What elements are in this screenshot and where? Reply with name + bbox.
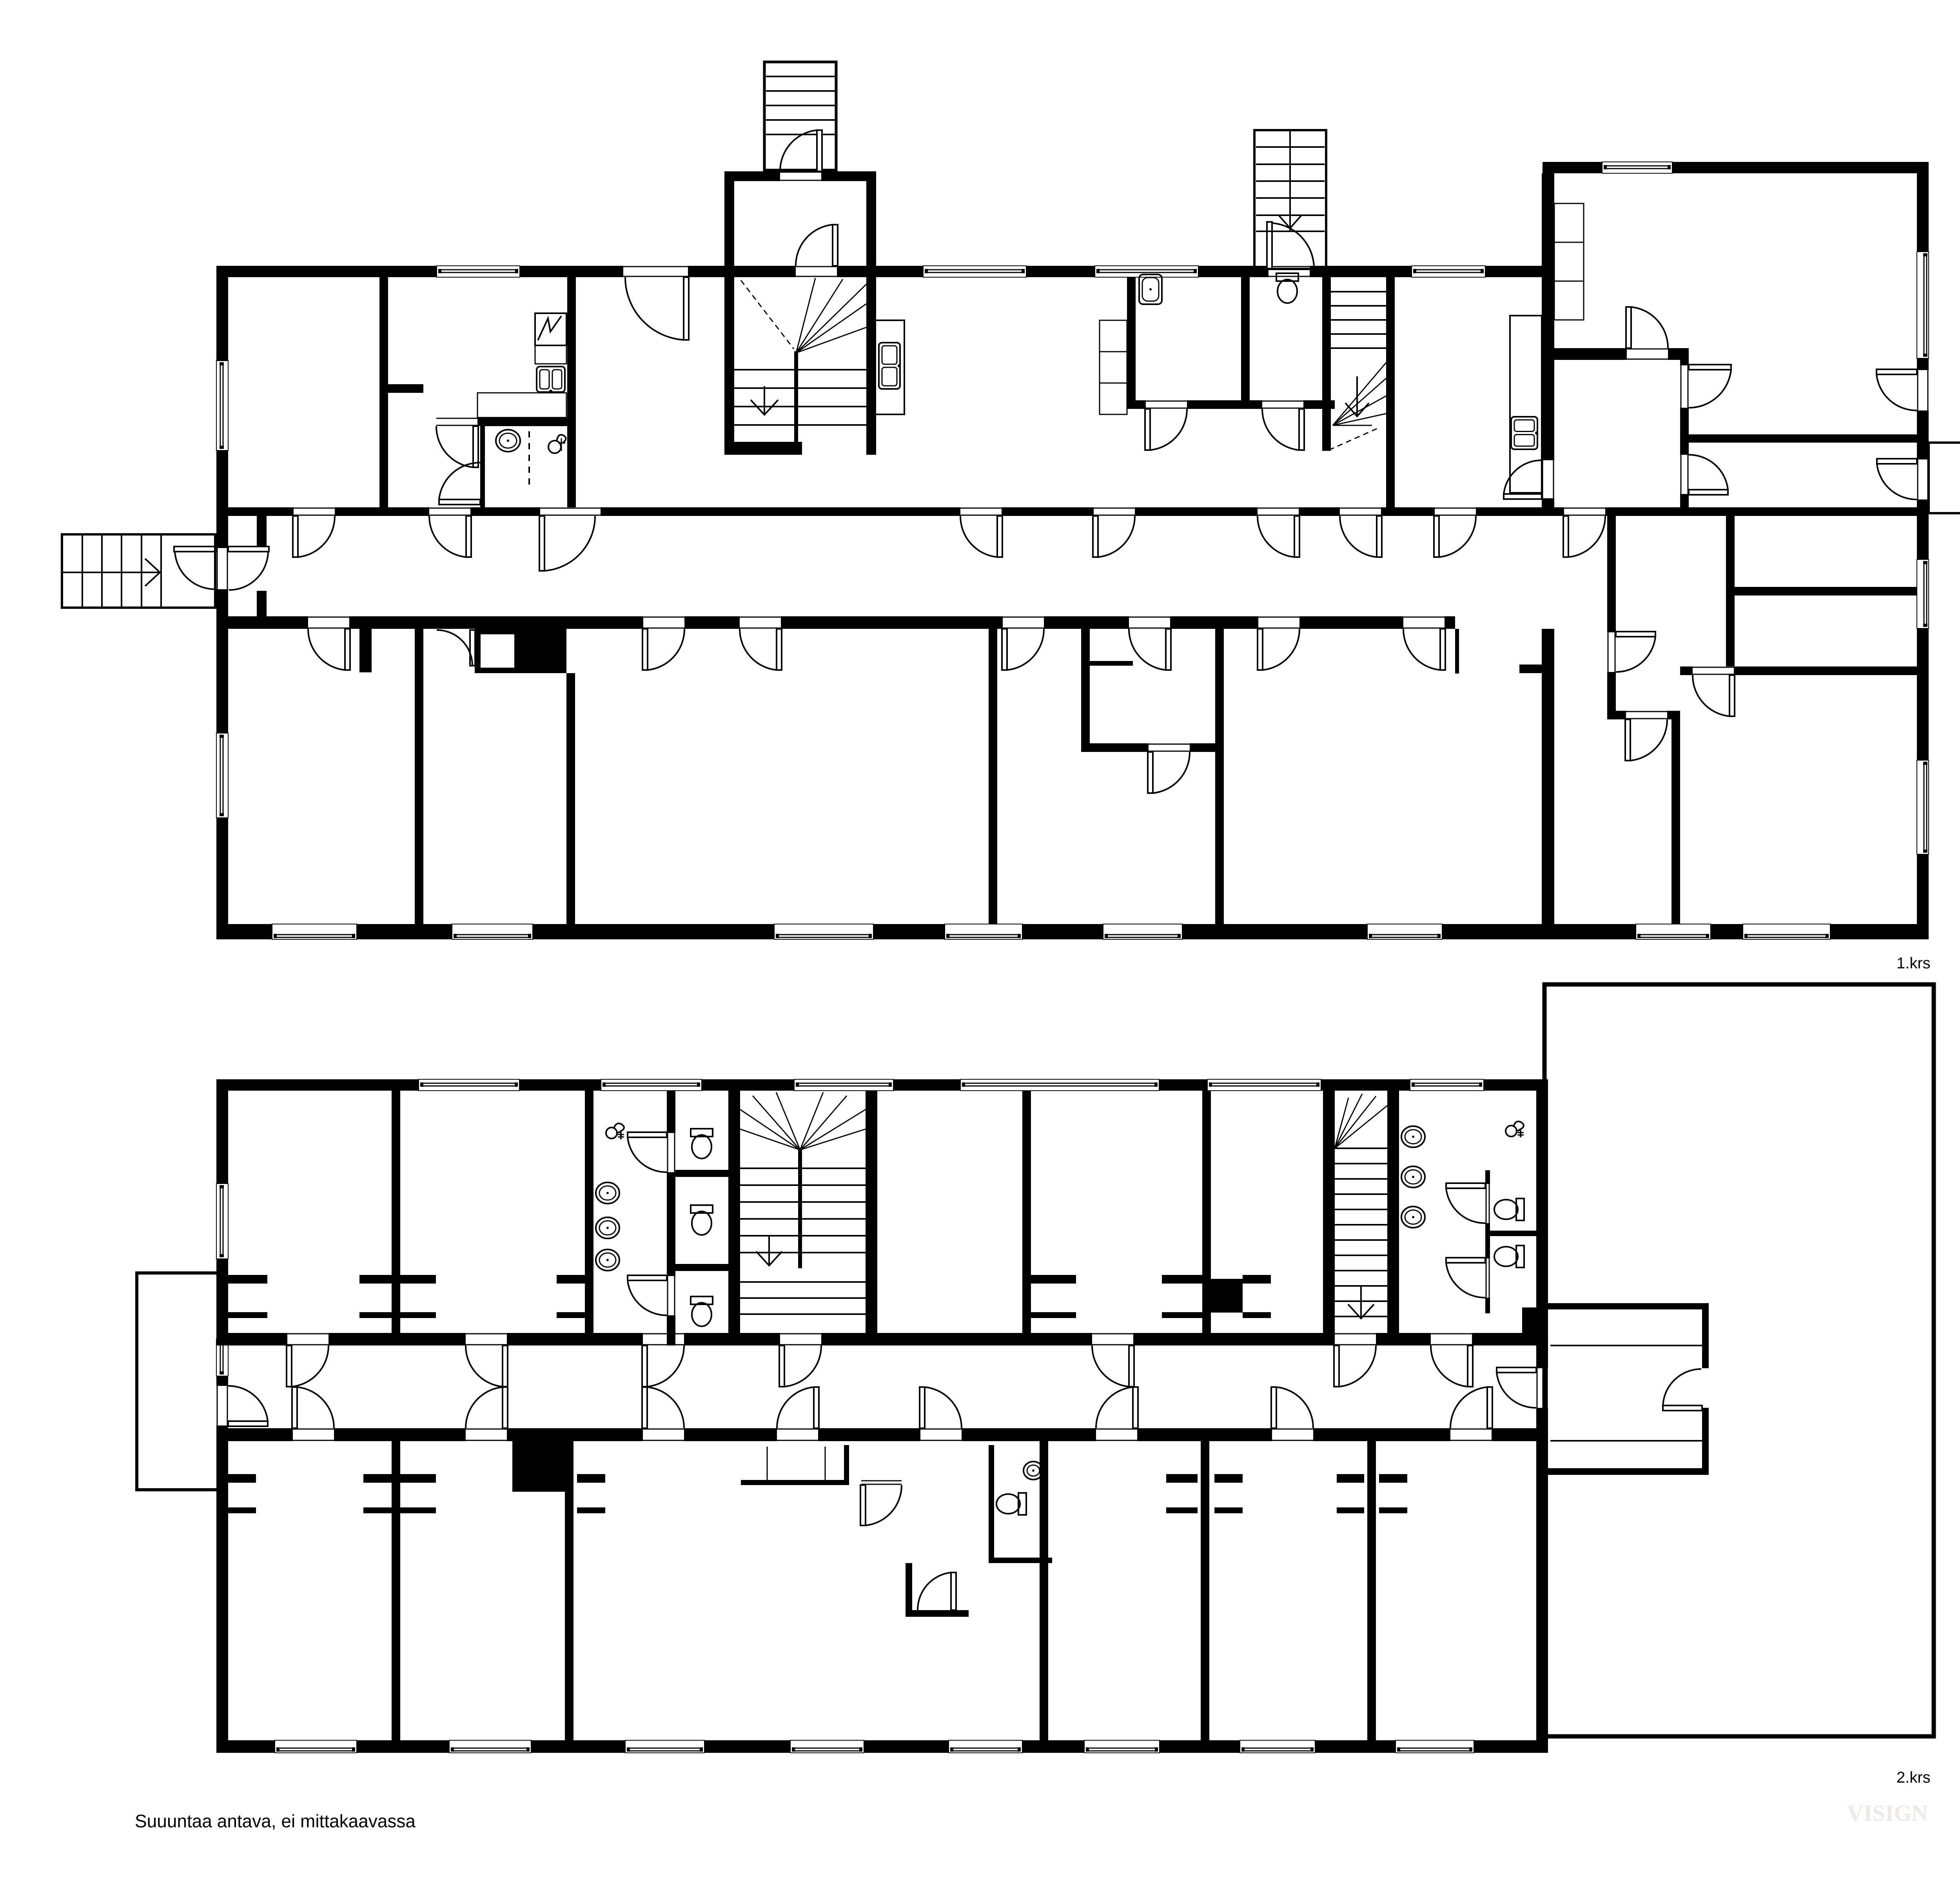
svg-text:2.krs: 2.krs — [1896, 1769, 1931, 1786]
svg-text:1.krs: 1.krs — [1896, 955, 1931, 972]
svg-text:VISIGN: VISIGN — [1847, 1800, 1928, 1826]
svg-text:Suuuntaa antava, ei mittakaava: Suuuntaa antava, ei mittakaavassa — [135, 1811, 416, 1831]
